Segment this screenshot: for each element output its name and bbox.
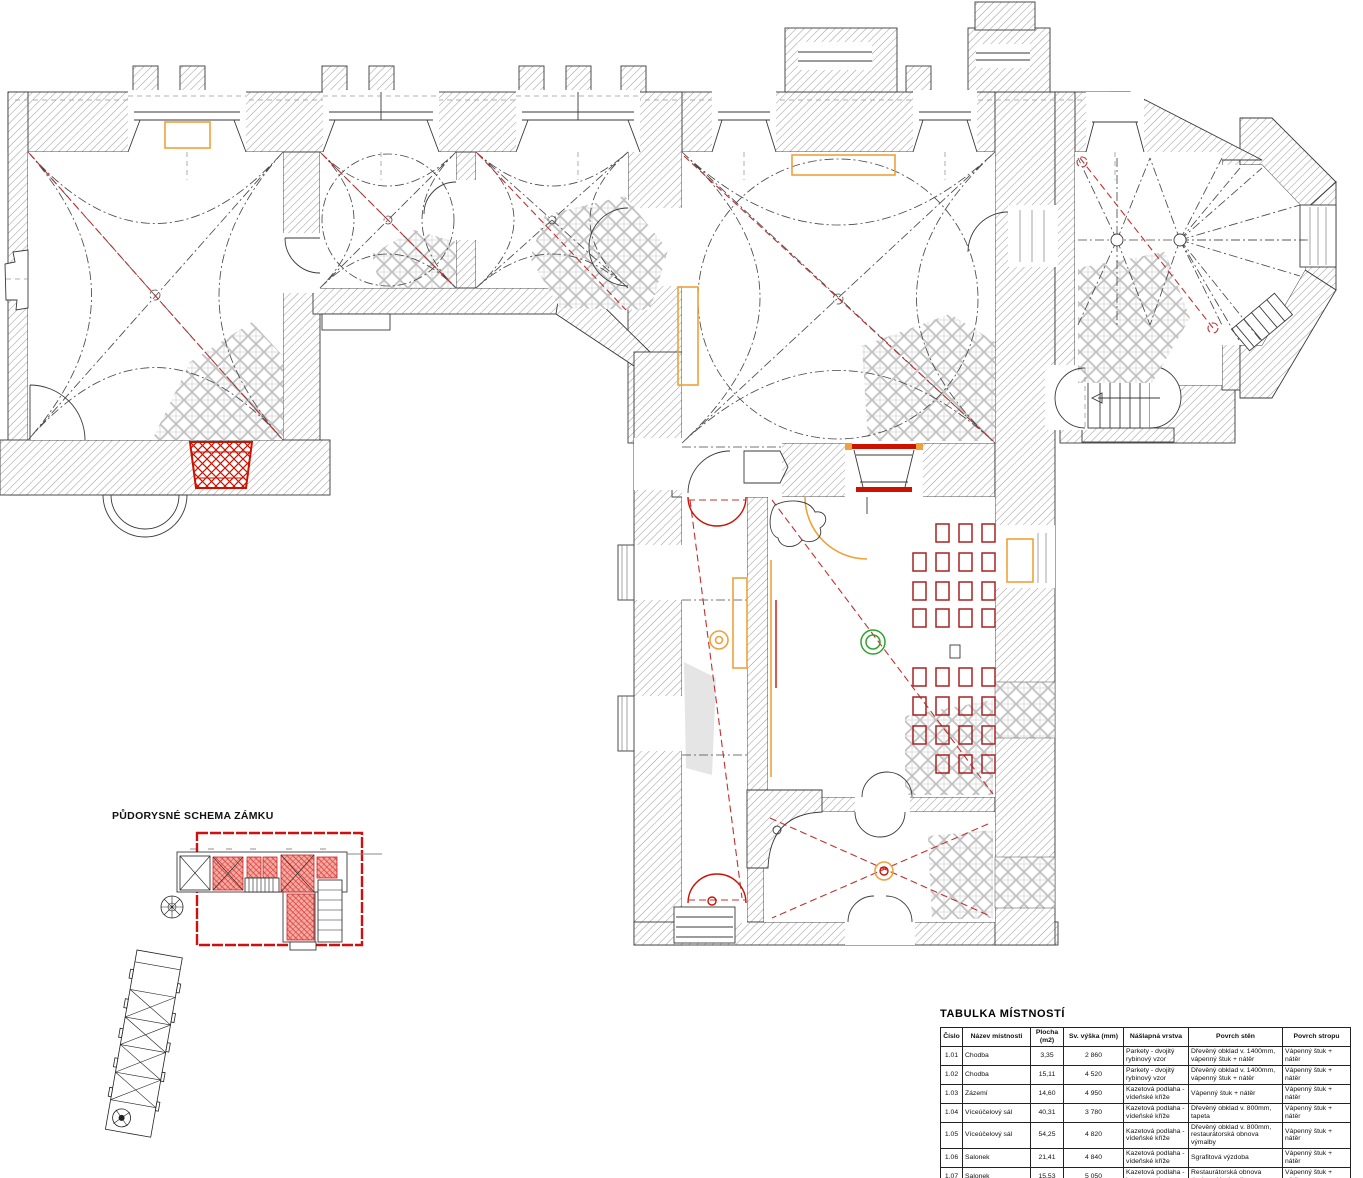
table-cell: Kazetová podlaha - vídeňské kříže xyxy=(1124,1122,1189,1148)
table-row: 1.03 Zázemí 14,60 4 950 Kazetová podlaha… xyxy=(941,1084,1351,1103)
table-cell: Kazetová podlaha - vídeňské kříže xyxy=(1124,1084,1189,1103)
table-cell: 1.03 xyxy=(941,1084,963,1103)
table-cell: 4 520 xyxy=(1064,1065,1124,1084)
table-cell: Parkety - dvojitý rybinový vzor xyxy=(1124,1065,1189,1084)
table-row: 1.04 Víceúčelový sál 40,31 3 780 Kazetov… xyxy=(941,1103,1351,1122)
col-header: Nášlapná vrstva xyxy=(1124,1028,1189,1047)
table-cell: Vápenný štuk + nátěr xyxy=(1283,1149,1351,1168)
table-cell: 4 950 xyxy=(1064,1084,1124,1103)
window xyxy=(323,90,439,152)
schema-overview xyxy=(102,833,382,1138)
col-header: Povrch stěn xyxy=(1189,1028,1283,1047)
table-cell: 2 860 xyxy=(1064,1046,1124,1065)
table-cell: 15,53 xyxy=(1031,1168,1064,1178)
table-cell: 54,25 xyxy=(1031,1122,1064,1148)
table-cell: Dřevěný obklad v. 1400mm, vápenný štuk +… xyxy=(1189,1046,1283,1065)
table-cell: Salonek xyxy=(963,1149,1031,1168)
table-cell: 3,35 xyxy=(1031,1046,1064,1065)
table-cell: Dřevěný obklad v. 800mm, restaurátorská … xyxy=(1189,1122,1283,1148)
table-cell: 14,60 xyxy=(1031,1084,1064,1103)
table-cell: 1.06 xyxy=(941,1149,963,1168)
table-cell: Sgrafitová výzdoba xyxy=(1189,1149,1283,1168)
table-cell: 1.05 xyxy=(941,1122,963,1148)
table-cell: 4 820 xyxy=(1064,1122,1124,1148)
table: Číslo Název místnosti Plocha (m2) Sv. vý… xyxy=(940,1027,1351,1178)
table-cell: 1.07 xyxy=(941,1168,963,1178)
window xyxy=(913,90,977,152)
table-cell: Víceúčelový sál xyxy=(963,1103,1031,1122)
table-cell: Víceúčelový sál xyxy=(963,1122,1031,1148)
schema-title: PŮDORYSNÉ SCHEMA ZÁMKU xyxy=(112,810,274,822)
table-title: TABULKA MÍSTNOSTÍ xyxy=(940,1008,1352,1020)
col-header: Povrch stropu xyxy=(1283,1028,1351,1047)
table-cell: Kazetová podlaha - vídeňské kříže xyxy=(1124,1103,1189,1122)
col-header: Sv. výška (mm) xyxy=(1064,1028,1124,1047)
window xyxy=(1086,92,1144,152)
table-cell: Dřevěný obklad v. 800mm, tapeta xyxy=(1189,1103,1283,1122)
table-header-row: Číslo Název místnosti Plocha (m2) Sv. vý… xyxy=(941,1028,1351,1047)
table-cell: 15,11 xyxy=(1031,1065,1064,1084)
table-row: 1.07 Salonek 15,53 5 050 Kazetová podlah… xyxy=(941,1168,1351,1178)
corridor-floor-shading xyxy=(684,662,716,775)
table-cell: 1.02 xyxy=(941,1065,963,1084)
table-row: 1.02 Chodba 15,11 4 520 Parkety - dvojit… xyxy=(941,1065,1351,1084)
table-row: 1.05 Víceúčelový sál 54,25 4 820 Kazetov… xyxy=(941,1122,1351,1148)
table-cell: 40,31 xyxy=(1031,1103,1064,1122)
window xyxy=(128,90,246,152)
floor-plan xyxy=(0,0,1363,1178)
col-header: Plocha (m2) xyxy=(1031,1028,1064,1047)
window xyxy=(712,90,776,152)
table-cell: Chodba xyxy=(963,1065,1031,1084)
table-cell: 5 050 xyxy=(1064,1168,1124,1178)
col-header: Číslo xyxy=(941,1028,963,1047)
table-cell: Vápenný štuk + nátěr xyxy=(1283,1103,1351,1122)
table-cell: 3 780 xyxy=(1064,1103,1124,1122)
table-row: 1.01 Chodba 3,35 2 860 Parkety - dvojitý… xyxy=(941,1046,1351,1065)
table-cell: Zázemí xyxy=(963,1084,1031,1103)
window xyxy=(516,90,640,152)
table-cell: Vápenný štuk + nátěr xyxy=(1283,1046,1351,1065)
table-cell: Dřevěný obklad v. 1400mm, vápenný štuk +… xyxy=(1189,1065,1283,1084)
table-cell: Parkety - dvojitý rybinový vzor xyxy=(1124,1046,1189,1065)
table-cell: Vápenný štuk + nátěr xyxy=(1283,1168,1351,1178)
table-cell: Chodba xyxy=(963,1046,1031,1065)
table-cell: 4 840 xyxy=(1064,1149,1124,1168)
table-cell: 1.01 xyxy=(941,1046,963,1065)
table-row: 1.06 Salonek 21,41 4 840 Kazetová podlah… xyxy=(941,1149,1351,1168)
room-table: TABULKA MÍSTNOSTÍ Číslo Název místnosti … xyxy=(940,1008,1352,1178)
col-header: Název místnosti xyxy=(963,1028,1031,1047)
table-cell: Vápenný štuk + nátěr xyxy=(1283,1122,1351,1148)
table-cell: Kazetová podlaha - intarzovaná xyxy=(1124,1168,1189,1178)
table-cell: Vápenný štuk + nátěr xyxy=(1283,1065,1351,1084)
table-cell: Salonek xyxy=(963,1168,1031,1178)
table-cell: Vápenný štuk + nátěr xyxy=(1189,1084,1283,1103)
table-cell: Vápenný štuk + nátěr xyxy=(1283,1084,1351,1103)
table-cell: Restaurátorská obnova dochovalé výmalby xyxy=(1189,1168,1283,1178)
table-cell: 1.04 xyxy=(941,1103,963,1122)
tiled-stove xyxy=(190,442,252,488)
table-cell: 21,41 xyxy=(1031,1149,1064,1168)
drawing-sheet: PŮDORYSNÉ SCHEMA ZÁMKU TABULKA MÍSTNOSTÍ… xyxy=(0,0,1363,1178)
table-cell: Kazetová podlaha - vídeňské kříže xyxy=(1124,1149,1189,1168)
